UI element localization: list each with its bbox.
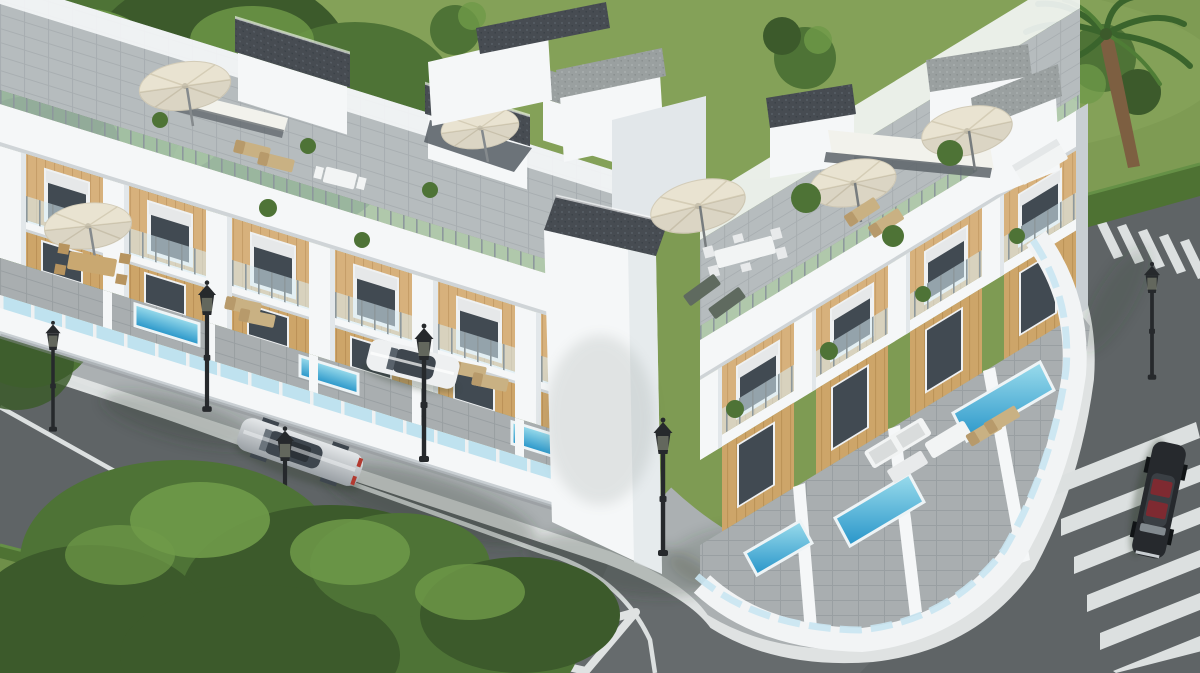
- corner-tower: [544, 196, 668, 574]
- scene-render: [0, 0, 1200, 673]
- render-viewport: [0, 0, 1200, 673]
- yard-divider: [412, 386, 421, 426]
- yard-divider: [103, 290, 112, 330]
- tower-tree-shadow: [545, 335, 655, 505]
- row-end-wall: [1076, 103, 1088, 315]
- yard-divider: [515, 418, 524, 458]
- yard-divider: [309, 354, 318, 394]
